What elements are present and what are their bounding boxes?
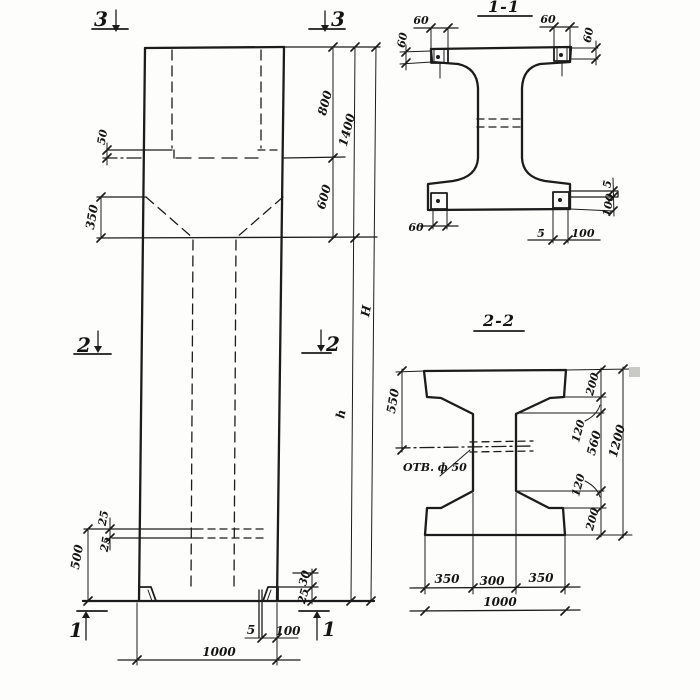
technical-drawing: 50 350 800 1400 600 H h 25 25 500 30 25 … xyxy=(0,0,700,700)
drawing-canvas: 50 350 800 1400 600 H h 25 25 500 30 25 … xyxy=(0,0,700,700)
dim-5-bottom-label: 5 xyxy=(537,227,545,240)
anchor-dot xyxy=(436,199,440,203)
section-1-left-label: 1 xyxy=(69,618,83,642)
dim-1000-label: 1000 xyxy=(202,645,236,659)
dim-1000-label-2-2: 1000 xyxy=(483,595,517,609)
dim-100-bottom-label: 100 xyxy=(572,227,595,240)
dim-60-right-label: 60 xyxy=(581,26,597,44)
dim-50-label: 50 xyxy=(95,128,111,146)
dim-60-bottom-left-label: 60 xyxy=(408,221,424,234)
section-1-right-label: 1 xyxy=(322,617,336,641)
dim-100-base-label: 100 xyxy=(275,624,301,638)
dim-300-label: 300 xyxy=(479,574,505,588)
dim-60-left-label: 60 xyxy=(395,31,411,49)
dim-350-left-label: 350 xyxy=(434,572,460,586)
anchor-dot xyxy=(558,198,562,202)
scan-artifact xyxy=(629,367,640,377)
dim-350-right-label: 350 xyxy=(528,571,554,585)
dim-5-base-label: 5 xyxy=(247,623,255,637)
section-1-1-title: 1-1 xyxy=(488,0,520,16)
canvas-background xyxy=(0,0,700,700)
hole-diameter-label: ОТВ. ф 50 xyxy=(403,461,467,474)
section-3-right-label: 3 xyxy=(331,7,345,31)
section-2-right-label: 2 xyxy=(325,332,340,356)
dim-60-top-right-label: 60 xyxy=(540,13,556,26)
anchor-dot xyxy=(436,55,440,59)
section-3-left-label: 3 xyxy=(94,7,108,31)
anchor-dot xyxy=(559,53,563,57)
dim-60-top-left-label: 60 xyxy=(413,14,429,27)
section-2-2-title: 2-2 xyxy=(482,311,515,330)
